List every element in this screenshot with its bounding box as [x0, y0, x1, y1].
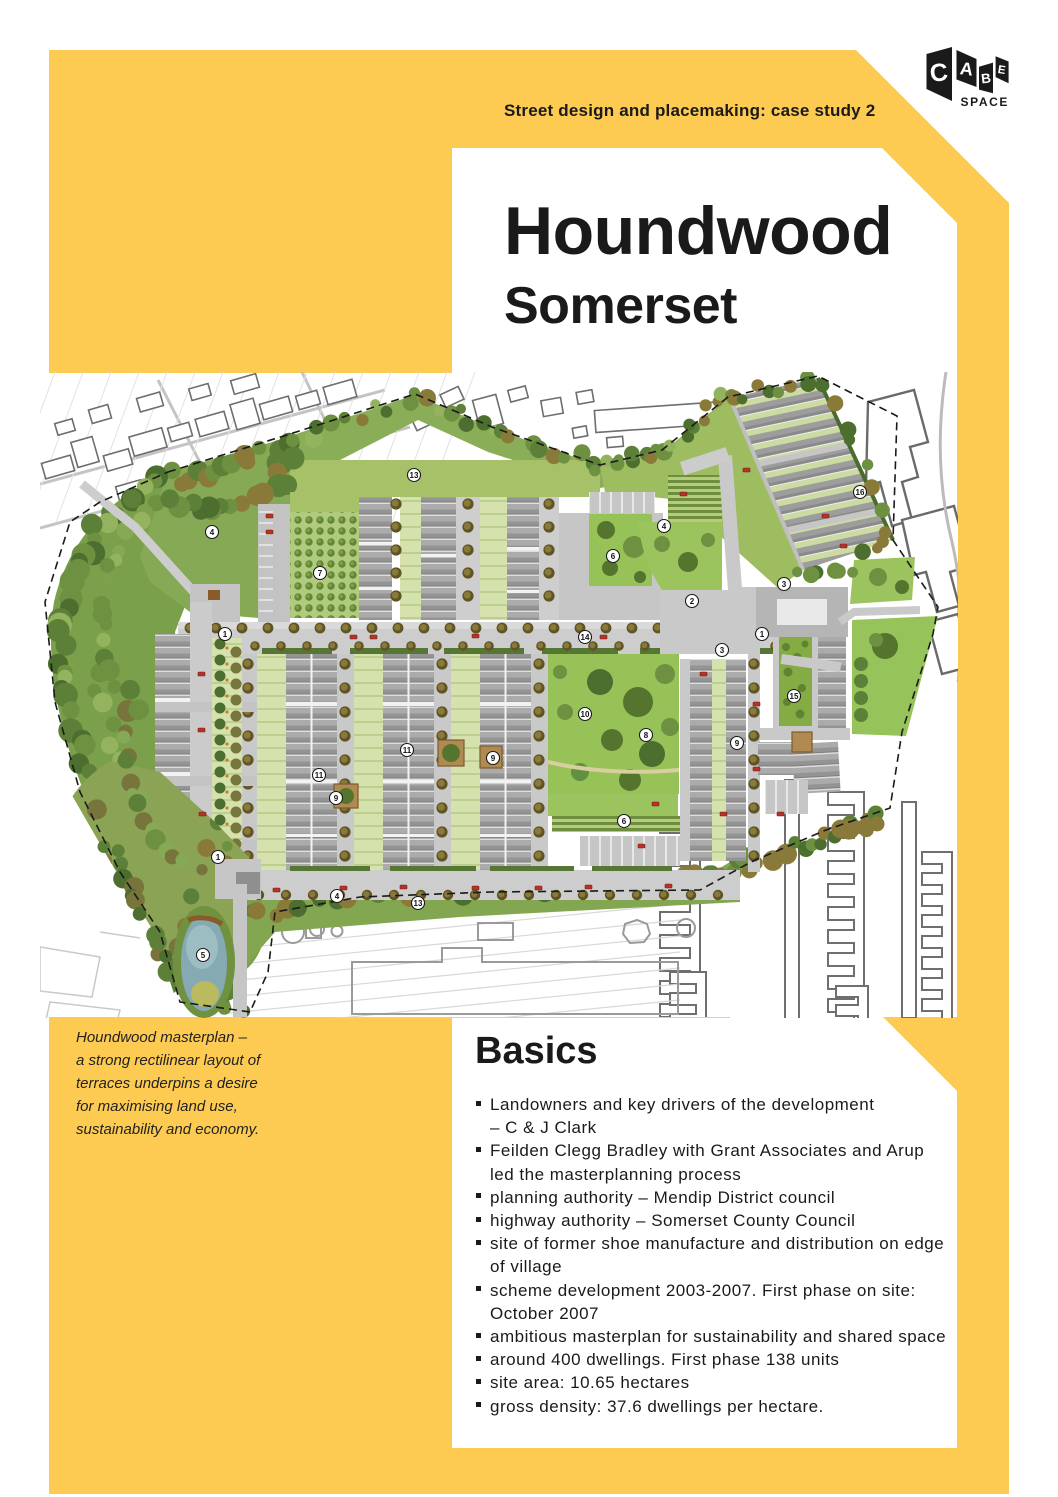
svg-text:A: A — [959, 58, 974, 79]
svg-text:6: 6 — [622, 817, 627, 826]
svg-text:11: 11 — [403, 746, 412, 755]
svg-text:13: 13 — [414, 899, 423, 908]
svg-text:8: 8 — [644, 731, 649, 740]
svg-text:SPACE: SPACE — [961, 95, 1009, 109]
svg-text:5: 5 — [201, 951, 206, 960]
svg-text:9: 9 — [491, 754, 496, 763]
svg-text:2: 2 — [690, 597, 695, 606]
svg-text:10: 10 — [581, 710, 590, 719]
svg-text:11: 11 — [315, 771, 324, 780]
svg-text:1: 1 — [223, 630, 228, 639]
svg-text:1: 1 — [760, 630, 765, 639]
svg-text:9: 9 — [334, 794, 339, 803]
svg-text:4: 4 — [662, 522, 667, 531]
svg-text:7: 7 — [318, 569, 323, 578]
svg-text:15: 15 — [790, 692, 799, 701]
svg-text:4: 4 — [210, 528, 215, 537]
svg-text:13: 13 — [410, 471, 419, 480]
svg-text:9: 9 — [735, 739, 740, 748]
svg-text:4: 4 — [335, 892, 340, 901]
svg-text:1: 1 — [216, 853, 221, 862]
svg-text:16: 16 — [856, 488, 865, 497]
svg-text:C: C — [928, 58, 949, 88]
svg-text:3: 3 — [720, 646, 725, 655]
svg-text:6: 6 — [611, 552, 616, 561]
svg-text:14: 14 — [581, 633, 590, 642]
svg-text:3: 3 — [782, 580, 787, 589]
